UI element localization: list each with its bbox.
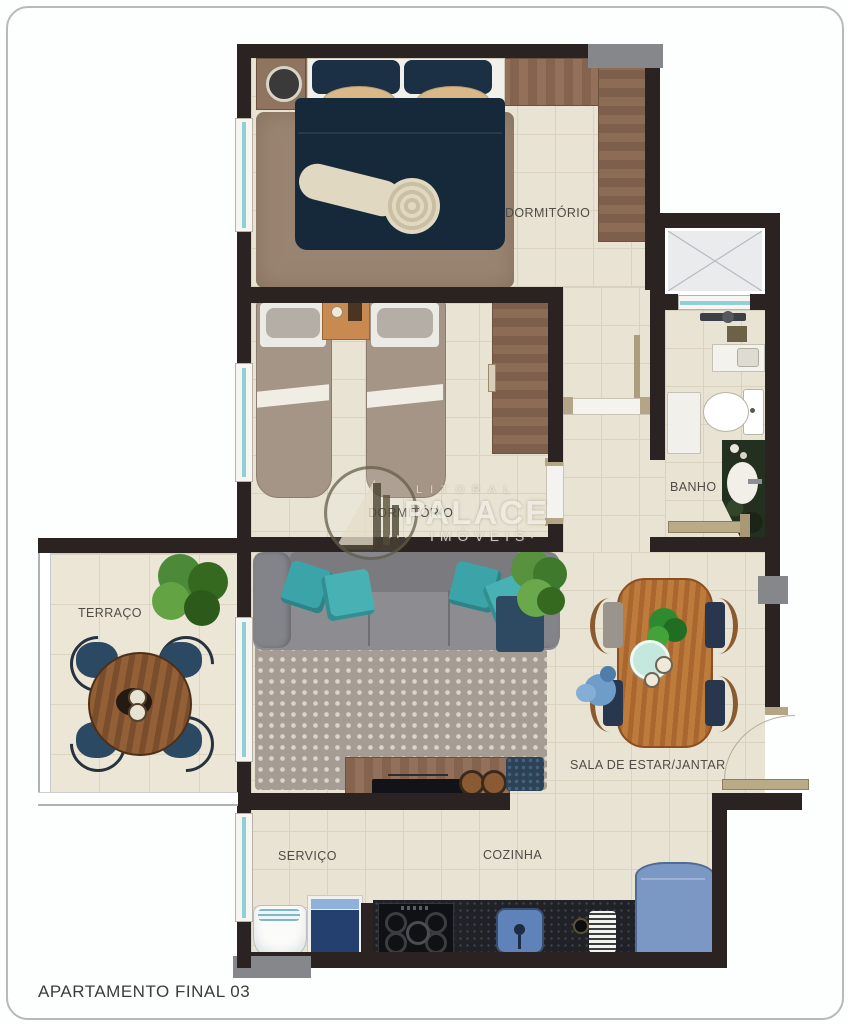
kids-nightstand [322,298,370,340]
wall-living-top-right [650,537,774,552]
wall-master-left-upper [237,44,251,118]
towel-bar-knob [722,311,734,323]
fridge [635,862,715,960]
watering-can-blue [576,666,620,712]
tv [372,779,464,794]
tv-stand-line [388,774,448,776]
shaft-cross-icon [668,231,762,291]
wall-living-left-upper [237,552,251,617]
table-lamp [266,66,302,102]
hall-door-cap-left [563,397,573,414]
wall-right-main [765,213,780,578]
dining-chair-left-1 [590,598,623,654]
wall-shaft-top [652,213,780,228]
bedroom2-window [235,363,253,482]
living-terrace-door [235,617,253,762]
wall-service-left-lower [237,920,251,968]
sofa-pillow-teal-2 [320,568,375,622]
nightstand-cup [331,306,343,318]
entry-door-leaf [722,779,809,790]
bath-bench [667,392,701,454]
label-master-bedroom: DORMITÓRIO [505,206,590,220]
shower-dot2 [740,452,747,459]
terrace-plant [148,552,236,632]
toilet-flush-dot [750,408,755,413]
label-kitchen: COZINHA [483,848,542,862]
column-right [758,576,788,604]
washing-machine [307,895,363,959]
wall-entry-bottom [712,793,802,810]
floor-plan-canvas: DORMITÓRIO DORMITÓRIO BANHO TERRAÇO SALA… [0,0,848,1024]
twin-bed-right-pillow-pad [377,308,433,338]
duvet-seam [298,132,502,134]
bathroom-window [678,295,752,310]
wall-living-left-lower [237,760,251,800]
wardrobe-right [598,58,647,242]
wall-terrace-top [38,538,237,553]
wall-kitchen-right [712,810,727,952]
terrace-cup-2 [128,703,147,722]
wall-bath-left [650,290,665,460]
shower-bar [748,479,762,484]
table-cup-2 [644,672,660,688]
toilet-bowl [703,392,749,432]
ventilation-shaft [665,228,765,294]
plan-caption: APARTAMENTO FINAL 03 [38,982,250,1002]
cooktop [378,903,454,955]
terrace-railing-bottom [38,792,238,806]
service-window [235,813,253,922]
wall-b2-left-upper [237,303,251,363]
twin-bed-left-pillow-pad [266,308,320,338]
wall-living-top-left [237,537,563,552]
wall-living-kitchen [237,793,510,810]
terrace-railing-left [38,553,51,803]
entry-frame-top [765,707,788,715]
label-living: SALA DE ESTAR/JANTAR [570,758,726,772]
kitchen-sink [496,908,544,954]
label-terrace: TERRAÇO [78,606,142,620]
label-bathroom: BANHO [670,480,716,494]
label-service: SERVIÇO [278,849,337,863]
bedroom2-door [546,462,564,522]
hall-door [563,398,652,415]
kitchen-knob [573,918,589,934]
window-cap-left [665,294,678,310]
hall-door-cap-right [640,397,650,414]
wall-master-top [237,44,588,58]
laundry-tub-stripes [258,909,300,921]
bathroom-door-hinge [740,514,750,538]
sofa-plant [505,545,569,629]
label-second-bedroom: DORMITÓRIO [368,506,453,520]
wall-b2-right [548,303,563,462]
wall-master-bottom [237,287,563,303]
wardrobe-second-bedroom [492,300,554,454]
wall-living-right [765,604,780,707]
bath-shelf-box [727,326,747,342]
pouf-navy [506,757,544,791]
column-top-right [588,44,663,68]
bath-sink [737,348,759,367]
window-cap-right [750,294,765,310]
wardrobe-handle [488,364,496,392]
master-window [235,118,253,232]
table-cup-1 [655,656,673,674]
bathroom-door-leaf [668,521,746,533]
dish-stack [589,911,616,953]
throw-swirl [384,178,440,234]
shower-dot1 [730,444,739,453]
hall-door-leaf-open [634,335,640,398]
nightstand-decor [348,303,362,321]
